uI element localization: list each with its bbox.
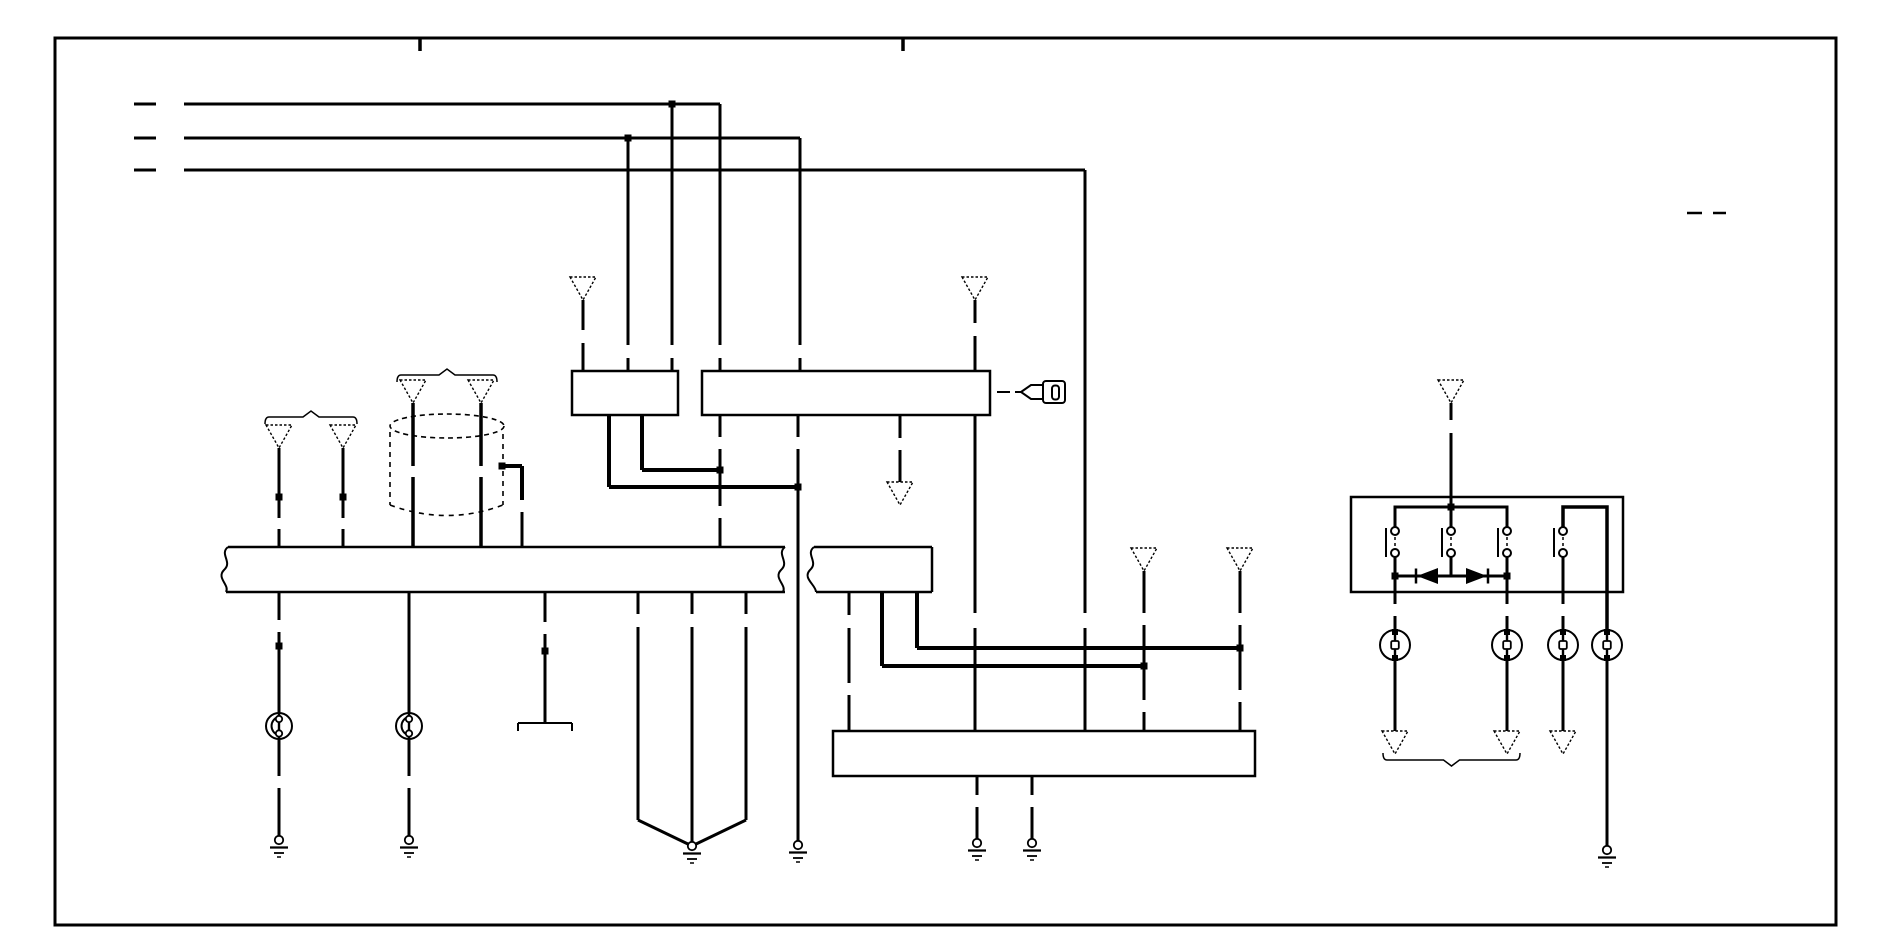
switch-terminal-icon: [1559, 527, 1567, 535]
wire-segment: [694, 820, 746, 845]
connector-triangle-icon: [962, 277, 988, 300]
ground-terminal-icon: [275, 836, 283, 844]
switch-terminal-icon: [1447, 549, 1455, 557]
bulb-connector-icon: [1503, 641, 1511, 649]
connector-triangle-icon: [266, 425, 292, 448]
component-box-b: [702, 371, 990, 415]
junction-dot: [276, 643, 283, 650]
connector-triangle-icon: [468, 380, 494, 403]
ground-terminal-icon: [405, 836, 413, 844]
bulb-connector-icon: [1504, 629, 1510, 635]
bulb-connector-icon: [1559, 641, 1567, 649]
connector-triangle-icon: [887, 482, 913, 505]
wiring-diagram-canvas: [0, 0, 1900, 950]
wiring-diagram-page: [0, 0, 1900, 950]
connector-triangle-icon: [1438, 380, 1464, 403]
ground-terminal-icon: [1603, 846, 1611, 854]
connector-triangle-icon: [330, 425, 356, 448]
inline-connector-icon: [276, 716, 282, 722]
junction-dot: [276, 494, 283, 501]
ground-terminal-icon: [1028, 839, 1036, 847]
bulb-connector-icon: [1391, 641, 1399, 649]
group-brace: [265, 411, 357, 424]
inline-connector-icon: [406, 730, 412, 736]
inline-connector-icon: [406, 716, 412, 722]
junction-dot: [340, 494, 347, 501]
connector-triangle-icon: [1382, 731, 1408, 754]
switch-terminal-icon: [1391, 527, 1399, 535]
connector-triangle-icon: [400, 380, 426, 403]
switch-terminal-icon: [1447, 527, 1455, 535]
group-brace: [1383, 753, 1520, 766]
inline-connector-icon: [276, 730, 282, 736]
switch-terminal-icon: [1559, 549, 1567, 557]
ground-terminal-icon: [794, 841, 802, 849]
key-icon: [1052, 386, 1059, 400]
bar-b-torn-left: [808, 547, 816, 592]
component-box-c: [833, 731, 1255, 776]
cylinder-bottom: [390, 505, 503, 516]
ground-terminal-icon: [688, 842, 696, 850]
switch-terminal-icon: [1503, 527, 1511, 535]
bulb-connector-icon: [1560, 629, 1566, 635]
key-icon: [1021, 385, 1043, 399]
bulb-connector-icon: [1604, 629, 1610, 635]
junction-dot: [542, 648, 549, 655]
coil-ring: [390, 414, 504, 438]
bar-a-torn-left: [221, 547, 228, 592]
bulb-connector-icon: [1392, 629, 1398, 635]
connector-triangle-icon: [1131, 548, 1157, 571]
connector-triangle-icon: [1494, 731, 1520, 754]
connector-triangle-icon: [1550, 731, 1576, 754]
switch-terminal-icon: [1391, 549, 1399, 557]
bulb-connector-icon: [1603, 641, 1611, 649]
connector-triangle-icon: [1227, 548, 1253, 571]
connector-triangle-icon: [570, 277, 596, 300]
bar-a-torn-right: [778, 547, 785, 592]
switch-terminal-icon: [1503, 549, 1511, 557]
ground-terminal-icon: [973, 839, 981, 847]
component-box-a: [572, 371, 678, 415]
wire-segment: [638, 820, 690, 845]
